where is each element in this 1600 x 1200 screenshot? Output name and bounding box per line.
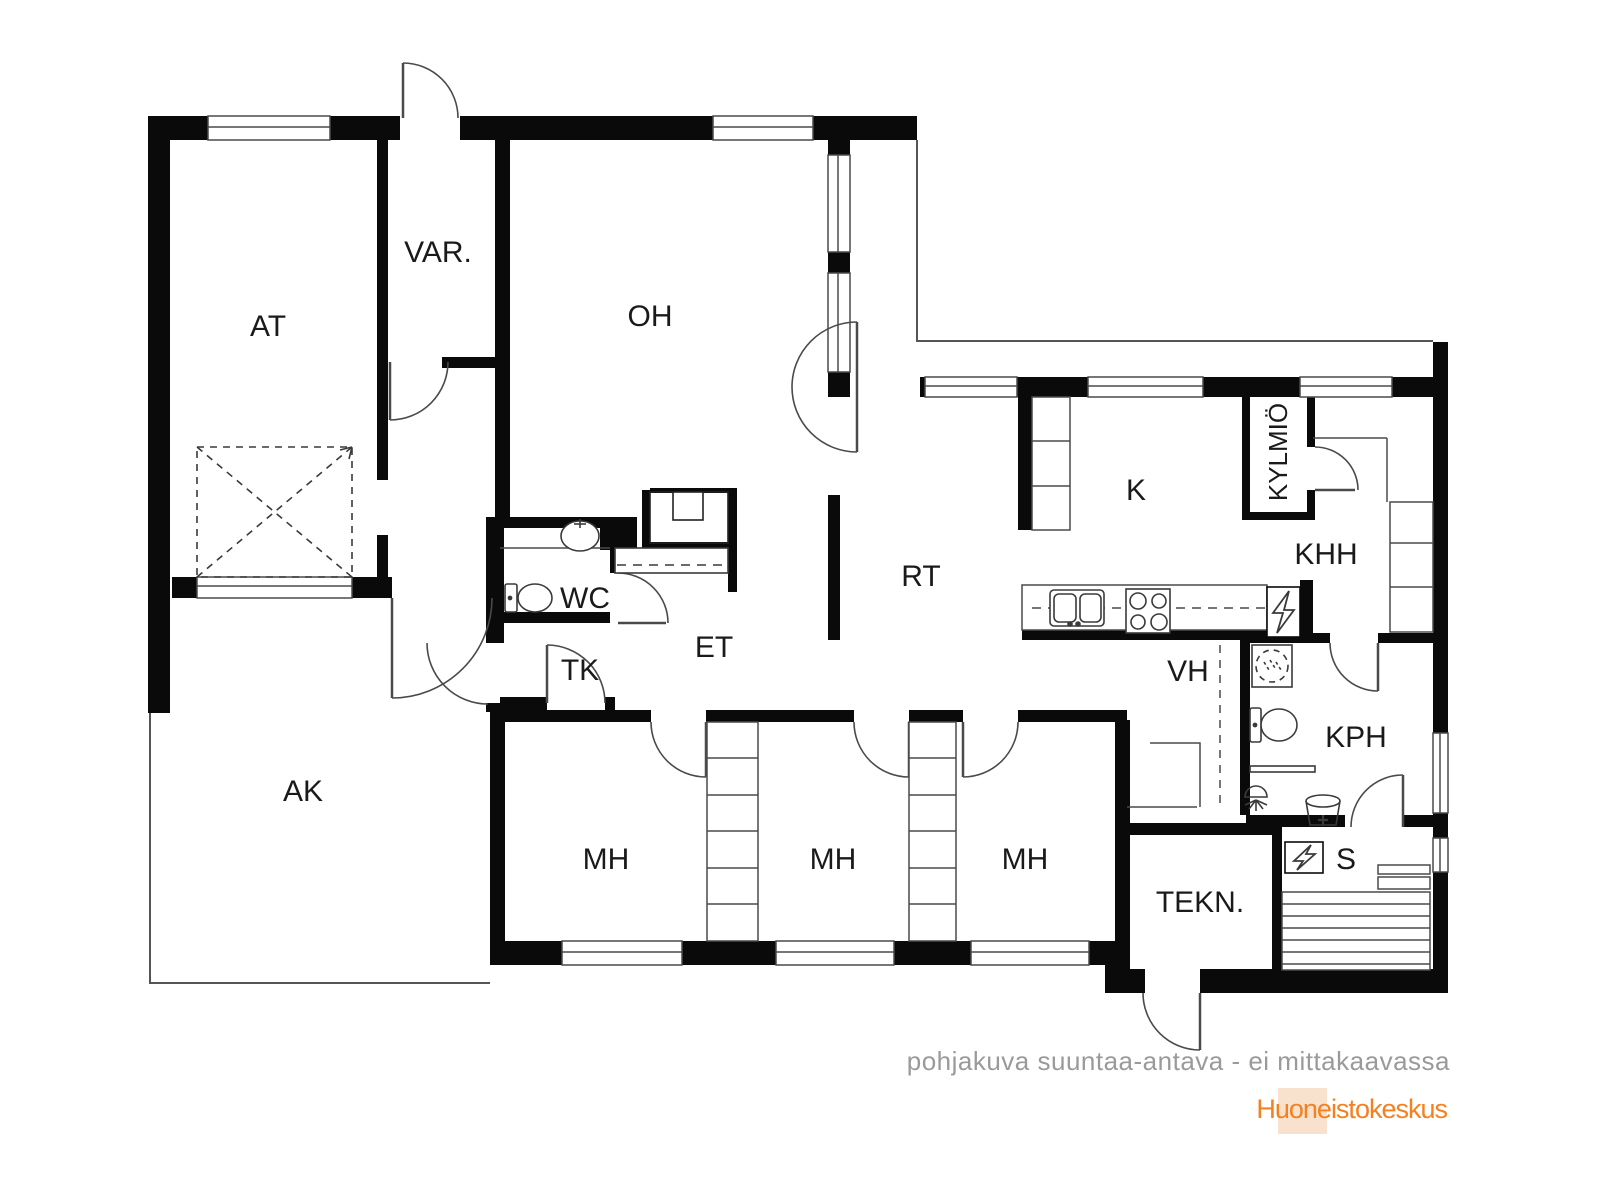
- electric-panel-icon: [1267, 587, 1300, 637]
- toilet-icon: [505, 584, 552, 612]
- ak-terrace-outline: [150, 713, 490, 983]
- sauna-bench-icon: [1282, 865, 1430, 970]
- room-label-mh2: MH: [810, 843, 857, 876]
- room-label-khh: KHH: [1294, 538, 1357, 571]
- room-label-tk: TK: [561, 654, 599, 687]
- wardrobe-icon: [909, 722, 956, 941]
- car-space-icon: [197, 447, 352, 577]
- room-label-at: AT: [250, 310, 286, 343]
- room-label-mh1: MH: [583, 843, 630, 876]
- room-label-rt: RT: [901, 560, 940, 593]
- room-label-var: VAR.: [404, 236, 472, 269]
- disclaimer-text: pohjakuva suuntaa-antava - ei mittakaava…: [907, 1046, 1450, 1077]
- room-label-mh3: MH: [1002, 843, 1049, 876]
- huoneistokeskus-logo: Huoneistokeskus: [1256, 1094, 1447, 1125]
- terrace-outlines: [150, 140, 1433, 983]
- room-label-wc: WC: [560, 582, 610, 615]
- stove-icon: [1126, 589, 1170, 633]
- room-label-et: ET: [695, 631, 733, 664]
- floor-plan-drawing: AT VAR. OH K KYLMIÖ KHH RT WC ET TK VH K…: [0, 0, 1600, 1200]
- room-labels: AT VAR. OH K KYLMIÖ KHH RT WC ET TK VH K…: [250, 236, 1387, 919]
- washing-machine-icon: [1252, 645, 1292, 687]
- walls: [148, 116, 1448, 993]
- kitchen-cabinets: [1032, 397, 1070, 530]
- room-label-kylmio: KYLMIÖ: [1263, 403, 1293, 501]
- room-label-kph: KPH: [1325, 721, 1387, 754]
- kitchen-sink-icon: [1050, 590, 1104, 626]
- room-label-ak: AK: [283, 775, 323, 808]
- khh-cabinets: [1313, 438, 1433, 632]
- built-ins: [500, 397, 1433, 970]
- upper-terrace-outline: [917, 140, 1433, 341]
- floor-plan-page: AT VAR. OH K KYLMIÖ KHH RT WC ET TK VH K…: [0, 0, 1600, 1200]
- room-label-tekn: TEKN.: [1156, 886, 1244, 919]
- room-label-s: S: [1336, 843, 1356, 876]
- wardrobe-icon: [707, 722, 758, 941]
- room-label-k: K: [1126, 474, 1146, 507]
- toilet-icon: [1250, 708, 1297, 742]
- doors: [390, 63, 1403, 1050]
- sauna-stove-icon: [1285, 842, 1323, 873]
- shelf: [1250, 766, 1315, 772]
- room-label-vh: VH: [1167, 655, 1209, 688]
- room-label-oh: OH: [628, 300, 673, 333]
